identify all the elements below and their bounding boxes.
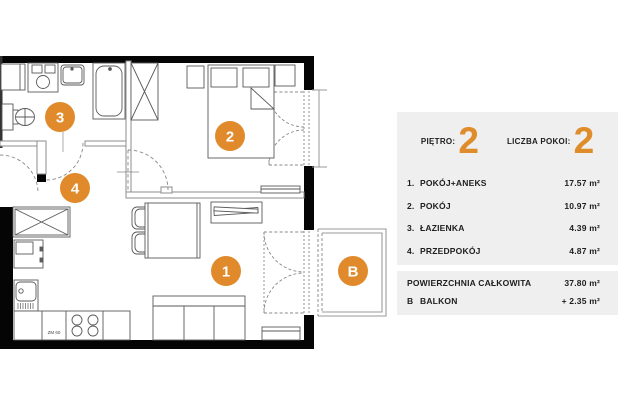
room-row-4: 4. PRZEDPOKÓJ 4.87 m² — [407, 246, 600, 256]
sofa — [153, 296, 245, 340]
svg-text:1: 1 — [222, 264, 230, 281]
total-area-row: POWIERZCHNIA CAŁKOWITA 37.80 m² — [407, 278, 600, 288]
fridge — [14, 240, 43, 268]
room-area: 17.57 m² — [564, 178, 600, 188]
room-name: PRZEDPOKÓJ — [420, 246, 569, 256]
room-area: 4.39 m² — [569, 223, 600, 233]
marker-balcony: B — [338, 256, 368, 286]
toilet — [2, 104, 35, 130]
balcony-letter: B — [407, 296, 420, 306]
panel-header: PIĘTRO: 2 LICZBA POKOI: 2 — [397, 118, 618, 164]
balcony-row: B BALKON + 2.35 m² — [407, 296, 600, 306]
room-row-2: 2. POKÓJ 10.97 m² — [407, 201, 600, 211]
living-radiator — [262, 327, 300, 340]
marker-room-4: 4 — [60, 173, 90, 203]
tv-sideboard — [211, 202, 262, 223]
marker-room-3: 3 — [45, 102, 75, 132]
balcony-area-value: + 2.35 m² — [562, 296, 600, 306]
room-area: 4.87 m² — [569, 246, 600, 256]
room-row-1: 1. POKÓJ+ANEKS 17.57 m² — [407, 178, 600, 188]
rooms-count-value: 2 — [574, 125, 595, 156]
room-number: 3. — [407, 223, 420, 233]
floor-value: 2 — [458, 125, 479, 156]
total-area-value: 37.80 m² — [564, 278, 600, 288]
washing-machine — [28, 63, 58, 92]
nightstand-right — [275, 65, 295, 86]
balcony-label: BALKON — [420, 296, 562, 306]
total-area-label: POWIERZCHNIA CAŁKOWITA — [407, 278, 564, 288]
room-list: 1. POKÓJ+ANEKS 17.57 m² 2. POKÓJ 10.97 m… — [407, 178, 600, 268]
room-row-3: 3. ŁAZIENKA 4.39 m² — [407, 223, 600, 233]
floor-plan: ZM 60 1 2 3 4 B — [0, 0, 396, 400]
rooms-count-label: LICZBA POKOI: — [507, 137, 571, 146]
marker-room-2: 2 — [215, 121, 245, 151]
dishwasher-label: ZM 60 — [48, 330, 61, 335]
balcony-slab-edge — [312, 90, 327, 167]
room-name: POKÓJ+ANEKS — [420, 178, 564, 188]
room-number: 1. — [407, 178, 420, 188]
area-summary-panel: POWIERZCHNIA CAŁKOWITA 37.80 m² B BALKON… — [397, 271, 618, 315]
apartment-info-panel: PIĘTRO: 2 LICZBA POKOI: 2 1. POKÓJ+ANEKS… — [397, 112, 618, 265]
kitchen-sink-unit — [14, 280, 38, 311]
kitchen-counter — [14, 311, 130, 340]
hall-closet — [13, 207, 70, 237]
bedroom-balcony-door — [269, 91, 309, 166]
room-number: 4. — [407, 246, 420, 256]
room-number: 2. — [407, 201, 420, 211]
room-name: POKÓJ — [420, 201, 564, 211]
bathtub — [93, 63, 125, 119]
floor-label: PIĘTRO: — [421, 137, 456, 146]
floor-indicator: PIĘTRO: 2 — [421, 125, 479, 156]
bedroom-wardrobe — [131, 63, 158, 120]
living-balcony-door — [264, 231, 309, 314]
svg-text:2: 2 — [226, 129, 234, 146]
bathroom-cabinet — [1, 64, 25, 90]
floorplan-page: { "panel": { "floor_label": "PIĘTRO:", "… — [0, 0, 620, 400]
marker-room-1: 1 — [211, 256, 241, 286]
dining-table — [145, 203, 200, 258]
svg-text:3: 3 — [56, 110, 64, 127]
room-name: ŁAZIENKA — [420, 223, 569, 233]
bedroom-radiator — [261, 186, 300, 193]
room-area: 10.97 m² — [564, 201, 600, 211]
bathroom-sink — [61, 65, 84, 85]
svg-text:4: 4 — [71, 181, 80, 198]
nightstand-left — [187, 66, 204, 88]
rooms-count-indicator: LICZBA POKOI: 2 — [507, 125, 594, 156]
svg-text:B: B — [348, 264, 359, 281]
